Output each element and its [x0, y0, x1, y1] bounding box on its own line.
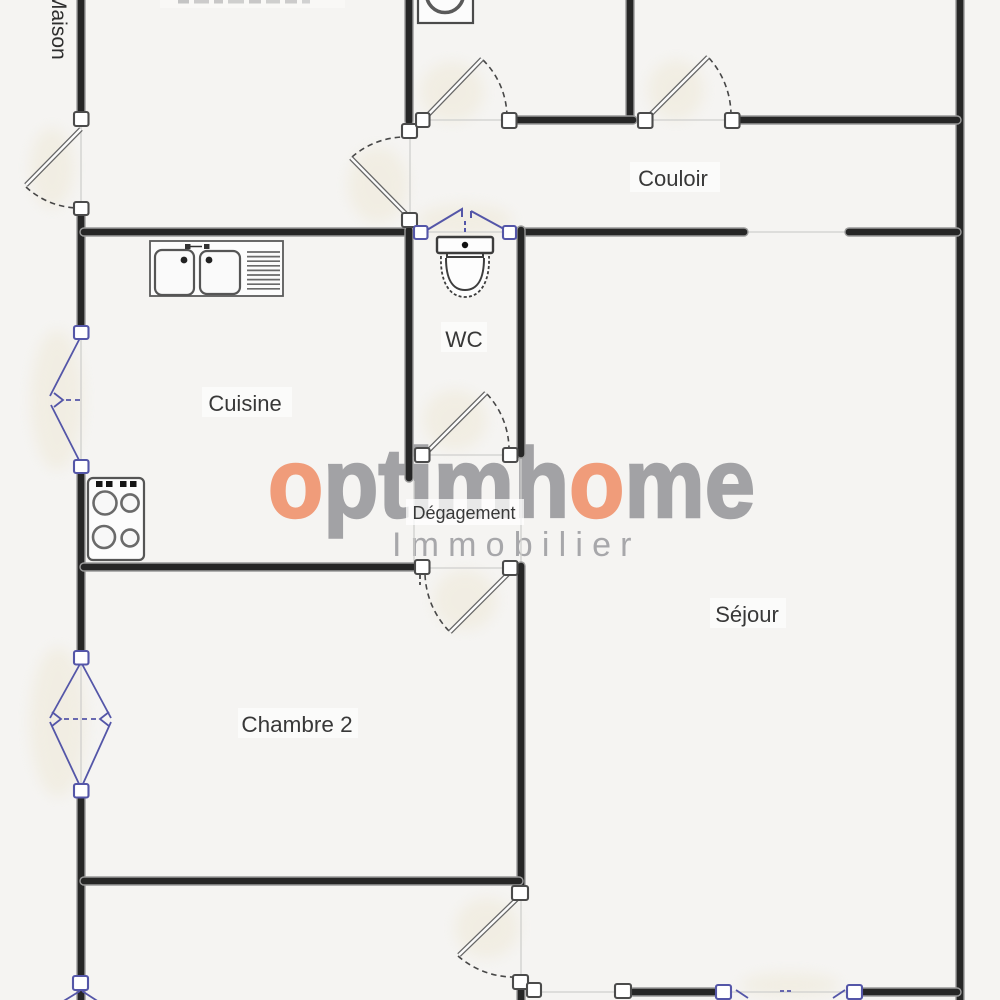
svg-text:Séjour: Séjour [715, 602, 779, 627]
svg-text:Couloir: Couloir [638, 166, 708, 191]
svg-text:Maison: Maison [47, 0, 70, 60]
svg-text:Chambre 2: Chambre 2 [241, 712, 352, 737]
svg-text:Cuisine: Cuisine [208, 391, 281, 416]
svg-text:Immobilier: Immobilier [392, 526, 642, 564]
svg-text:Dégagement: Dégagement [412, 503, 515, 523]
svg-text:WC: WC [445, 327, 483, 352]
